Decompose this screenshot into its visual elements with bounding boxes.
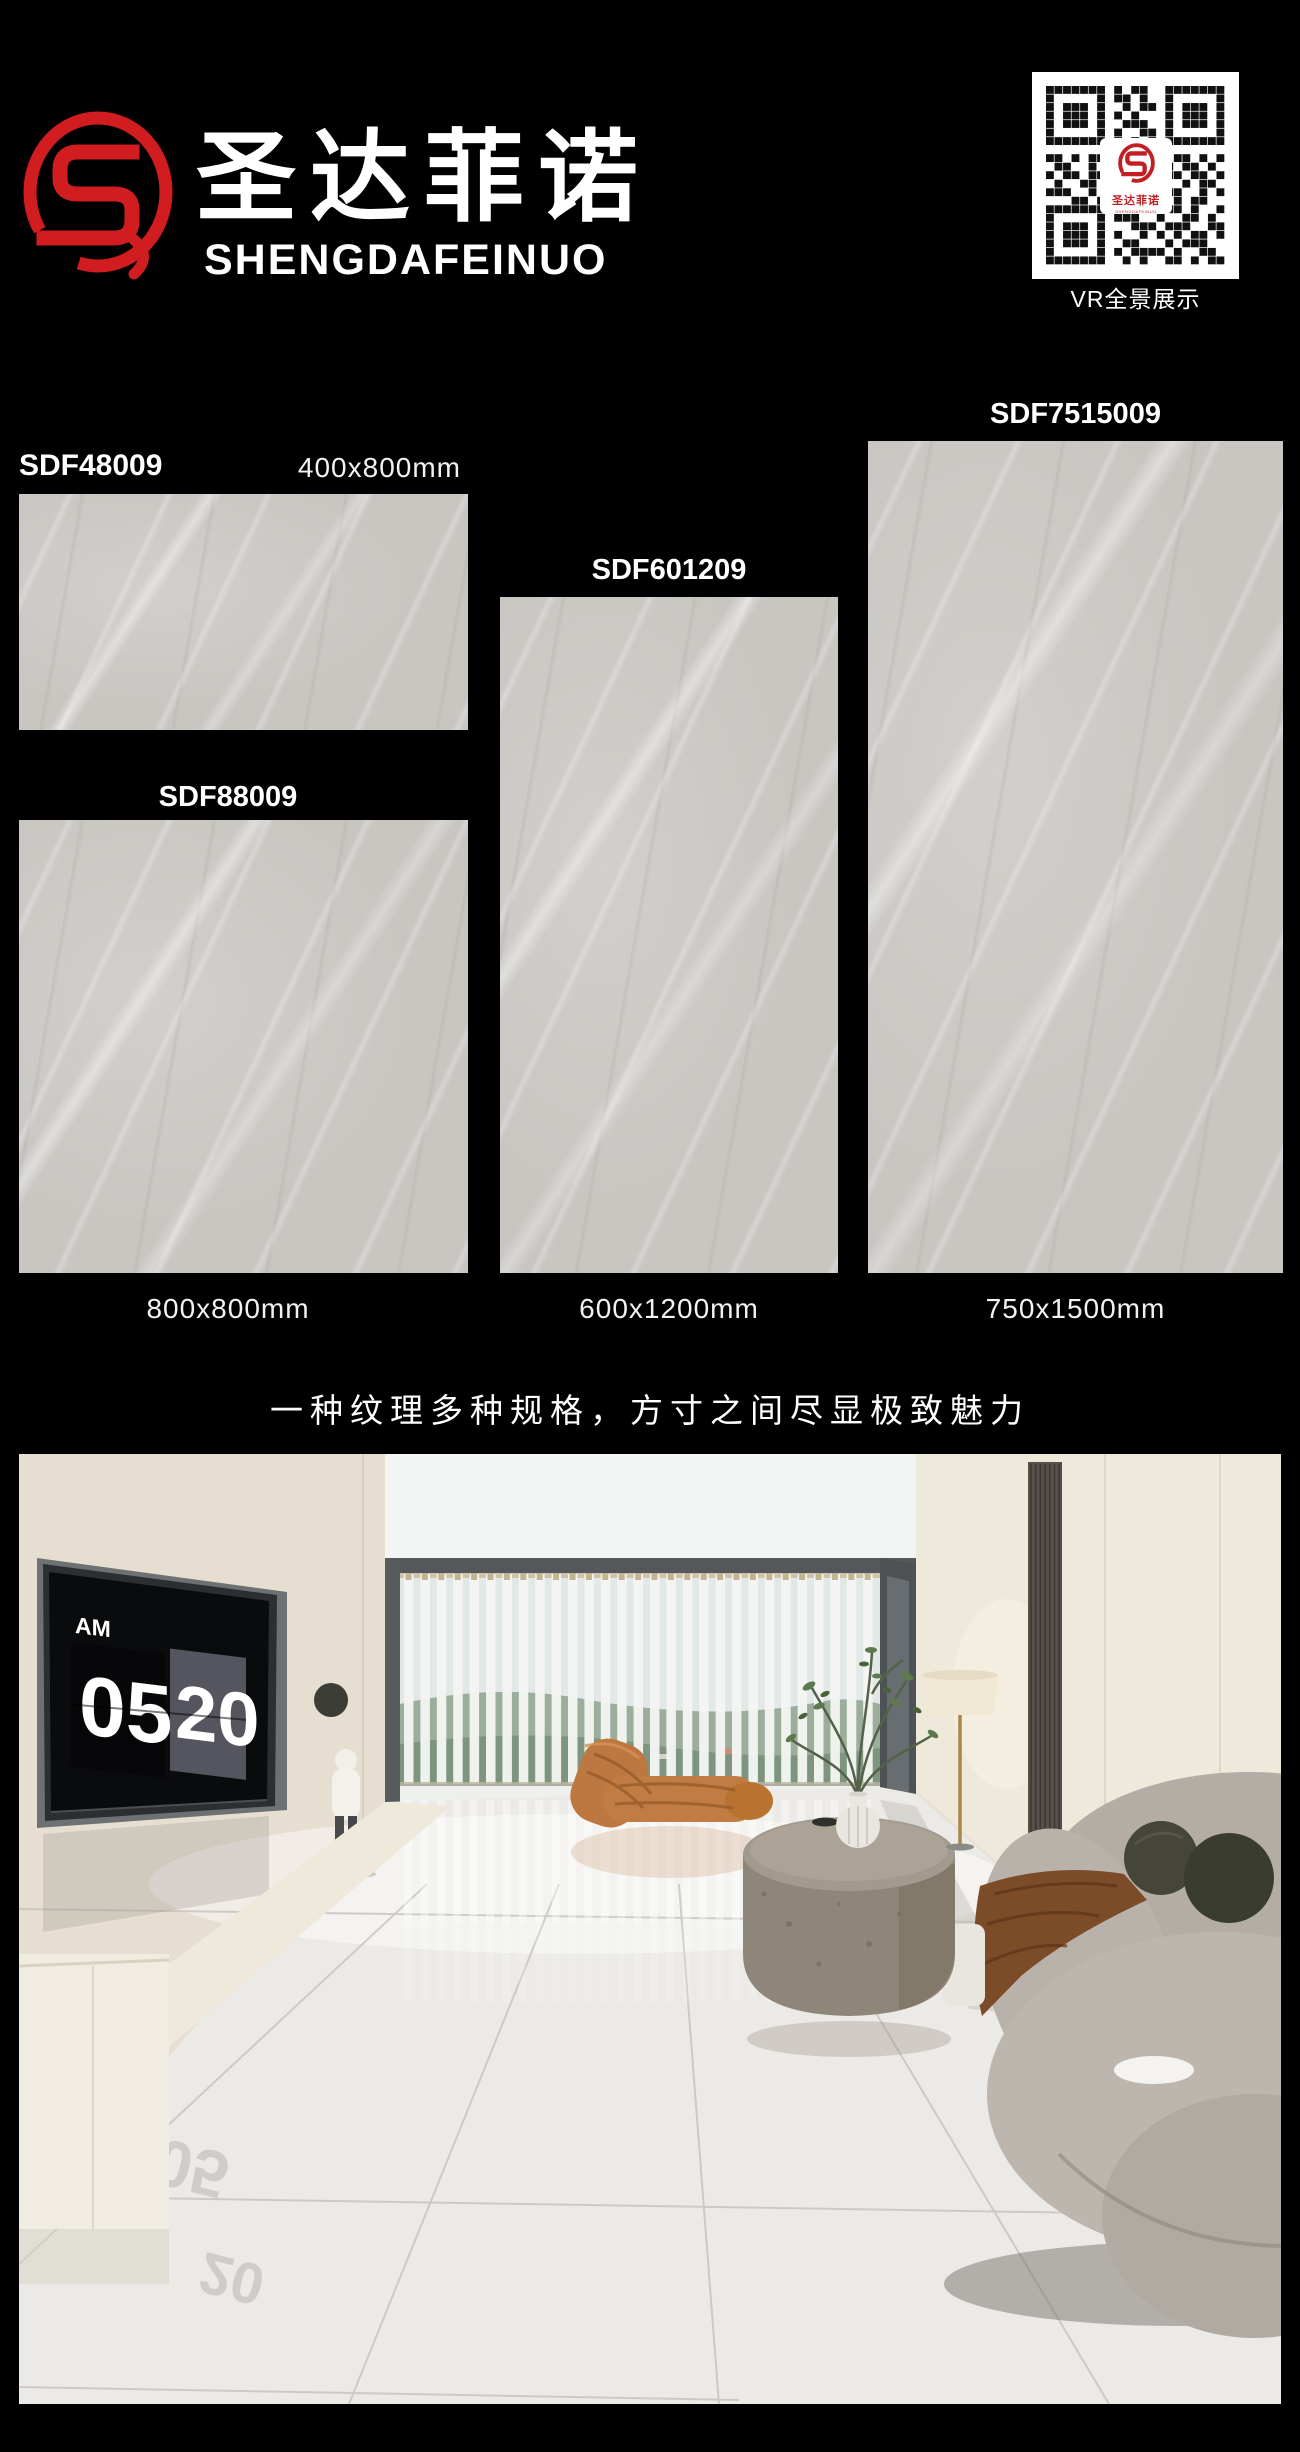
ceiling-light-floor-reflection — [1114, 2056, 1194, 2084]
living-room-photo: AM 05 20 20 05 — [19, 1454, 1281, 2404]
qr-center-logo: 圣达菲诺 SHENGDAFEINUO — [1100, 138, 1172, 214]
tile-swatch-sdf48009 — [19, 494, 468, 730]
product-size-750x1500: 750x1500mm — [868, 1293, 1283, 1325]
product-size-400x800: 400x800mm — [291, 452, 461, 484]
qr-center-brand-cn: 圣达菲诺 — [1112, 192, 1160, 208]
sofa-ball-cushion-2 — [1184, 1833, 1274, 1923]
brand-logo — [14, 88, 182, 308]
poster-page: 圣达菲诺 SHENGDAFEINUO 圣达菲诺 SHENGDAFEINUO VR… — [0, 0, 1300, 2452]
product-size-800x800: 800x800mm — [19, 1293, 437, 1325]
vr-qr-code: 圣达菲诺 SHENGDAFEINUO — [1032, 72, 1239, 279]
product-code-sdf88009: SDF88009 — [19, 781, 437, 814]
qr-mini-logo-icon — [1033, 138, 1240, 191]
tile-swatch-sdf88009 — [19, 820, 468, 1273]
qr-center-brand-en: SHENGDAFEINUO — [1115, 209, 1156, 214]
brand-name-en: SHENGDAFEINUO — [204, 236, 607, 285]
brand-name-cn: 圣达菲诺 — [196, 96, 696, 241]
tile-swatch-sdf7515009 — [868, 441, 1283, 1273]
product-size-600x1200: 600x1200mm — [500, 1293, 838, 1325]
window-frame-top — [385, 1558, 916, 1573]
decor-bowl — [812, 1818, 838, 1827]
vr-panorama-label: VR全景展示 — [1032, 280, 1239, 314]
product-code-sdf48009: SDF48009 — [19, 449, 162, 483]
tagline-text: 一种纹理多种规格，方寸之间尽显极致魅力 — [0, 1384, 1300, 1432]
product-code-sdf7515009: SDF7515009 — [868, 398, 1283, 431]
decor-sphere — [314, 1683, 348, 1717]
living-room-scene: AM 05 20 20 05 — [19, 1454, 1281, 2404]
clock-meridiem: AM — [75, 1612, 111, 1642]
wood-slat-lines — [1031, 1464, 1059, 1842]
window-frame-left — [385, 1558, 400, 1804]
tile-swatch-sdf601209 — [500, 597, 838, 1273]
product-code-sdf601209: SDF601209 — [500, 554, 838, 587]
